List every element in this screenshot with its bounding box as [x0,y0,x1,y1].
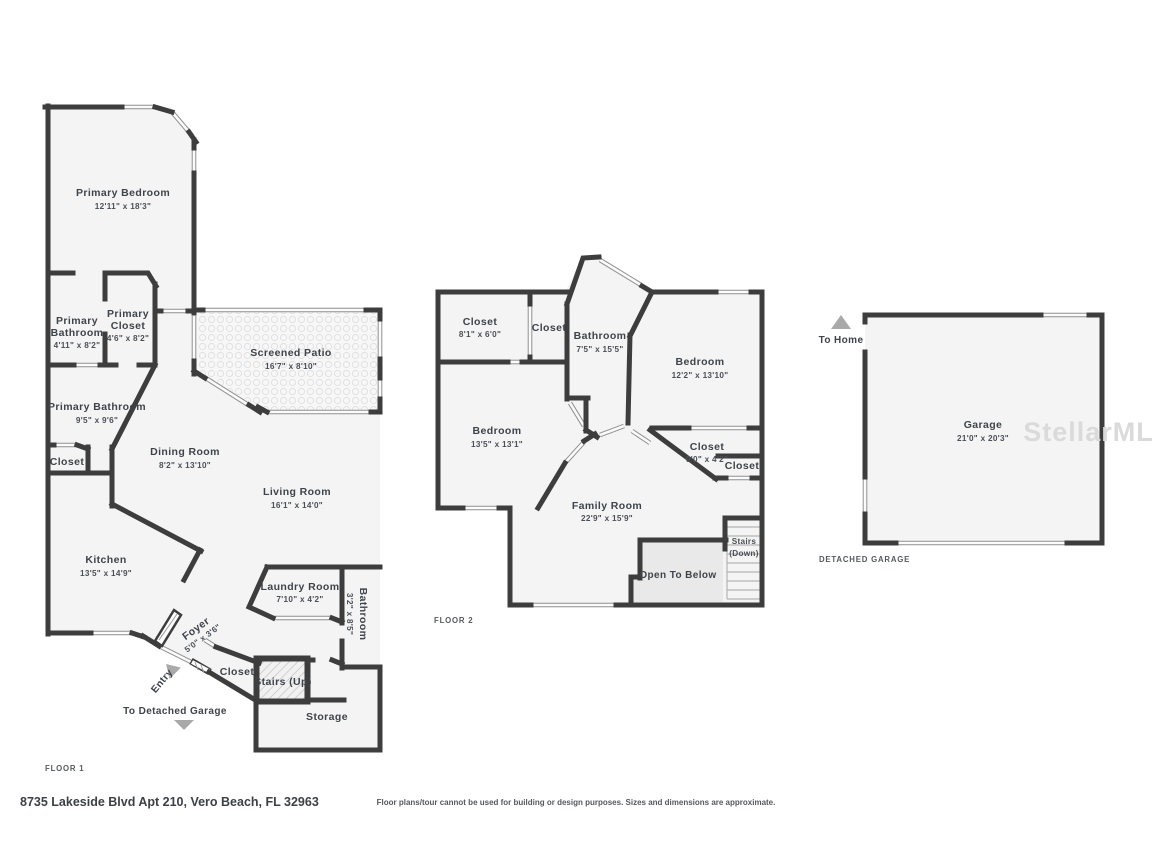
room-label-stairs-down-a: Stairs [732,537,757,546]
room-label-dining-room: Dining Room [150,446,220,458]
room-label-bathroom-f2: Bathroom [574,330,627,342]
room-dims-screened-patio: 16'7" x 8'10" [265,362,317,371]
room-label-stairs-down-b: (Down) [729,549,759,558]
detached-garage-label: DETACHED GARAGE [819,555,910,564]
room-label-closet-f2-right: Closet [690,441,725,453]
address-text: 8735 Lakeside Blvd Apt 210, Vero Beach, … [20,795,319,809]
room-label-primary-bathroom-2: Primary Bathroom [48,401,146,413]
to-detached-garage-arrow-icon [174,720,194,730]
room-label-living-room: Living Room [263,486,331,498]
room-dims-kitchen: 13'5" x 14'9" [80,569,132,578]
room-label-storage: Storage [306,711,348,723]
room-dims-family-room: 22'9" x 15'9" [581,514,633,523]
room-label-bedroom-left: Bedroom [473,425,522,437]
room-label-kitchen: Kitchen [85,554,126,566]
room-label-primary-closet-b: Closet [111,320,146,332]
room-dims-primary-closet: 4'6" x 8'2" [107,334,149,343]
room-label-stairs-up: Stairs (Up) [254,676,312,688]
room-label-family-room: Family Room [572,500,642,512]
to-detached-garage-label: To Detached Garage [123,706,227,717]
floor-plan-page: Primary Bedroom 12'11" x 18'3" Primary B… [0,0,1152,864]
watermark: StellarMLS [1023,417,1152,447]
room-label-closet-left: Closet [50,456,85,468]
room-dims-primary-bathroom-1: 4'11" x 8'2" [54,341,101,350]
room-dims-bathroom-f2: 7'5" x 15'5" [576,345,623,354]
floor-plan-canvas: Primary Bedroom 12'11" x 18'3" Primary B… [0,0,1152,864]
entry-label: Entry [149,667,175,695]
room-label-garage: Garage [964,419,1003,431]
room-label-primary-bedroom: Primary Bedroom [76,187,170,199]
floor1-plan: Primary Bedroom 12'11" x 18'3" Primary B… [45,106,380,773]
entry-label-group: Entry [149,667,175,695]
room-label-primary-bathroom-1b: Bathroom [51,327,104,339]
room-dims-primary-bathroom-2: 9'5" x 9'6" [76,416,118,425]
room-dims-closet-f2-big: 8'1" x 6'0" [459,330,501,339]
room-label-bedroom-right: Bedroom [676,356,725,368]
room-dims-laundry-room: 7'10" x 4'2" [276,595,323,604]
room-label-laundry-room: Laundry Room [261,581,340,593]
room-dims-living-room: 16'1" x 14'0" [271,501,323,510]
to-home-arrow-icon [831,315,851,329]
room-label-bathroom: Bathroom [357,588,369,641]
to-home-label: To Home [819,335,864,346]
room-dims-dining-room: 8'2" x 13'10" [159,461,211,470]
room-label-closet-f2-big: Closet [463,316,498,328]
room-dims-garage: 21'0" x 20'3" [957,434,1009,443]
room-dims-closet-f2-right: 9'0" x 4'2" [686,455,728,464]
room-label-screened-patio: Screened Patio [250,347,331,359]
open-to-below-label: Open To Below [639,570,716,581]
room-dims-bedroom-right: 12'2" x 13'10" [672,371,729,380]
room-dims-bedroom-left: 13'5" x 13'1" [471,440,523,449]
room-label-closet-foyer: Closet [220,666,255,678]
room-dims-primary-bedroom: 12'11" x 18'3" [95,202,151,211]
floor1-label: FLOOR 1 [45,764,84,773]
room-label-closet-f2-small: Closet [532,322,567,334]
room-label-primary-bathroom-1a: Primary [56,315,98,327]
disclaimer-text: Floor plans/tour cannot be used for buil… [377,798,776,807]
floor2-label: FLOOR 2 [434,616,473,625]
room-label-closet-f2-corner: Closet [725,460,760,472]
floor2-plan: Closet 8'1" x 6'0" Closet Bathroom 7'5" … [434,257,762,625]
room-dims-bathroom: 3'2" x 8'5" [345,593,354,635]
room-label-primary-closet-a: Primary [107,308,149,320]
